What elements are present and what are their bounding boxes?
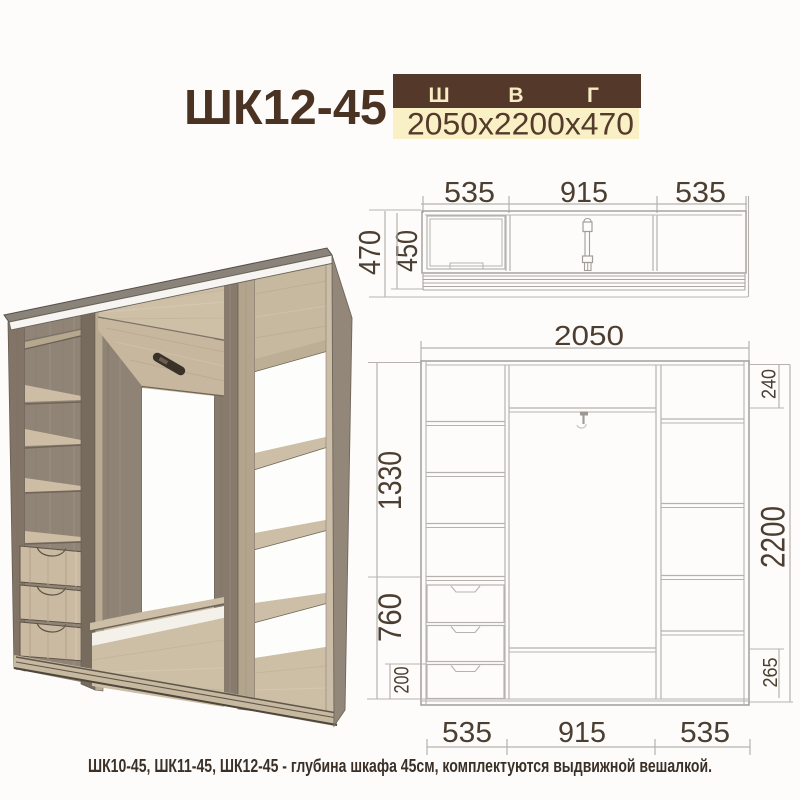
svg-text:2050: 2050 [554, 320, 624, 351]
svg-text:Г: Г [587, 84, 599, 107]
svg-text:470: 470 [352, 230, 387, 275]
svg-text:535: 535 [442, 717, 492, 749]
svg-text:ШК10-45, ШК11-45, ШК12-45 - гл: ШК10-45, ШК11-45, ШК12-45 - глубина шкаф… [88, 756, 712, 776]
svg-text:ШК12-45: ШК12-45 [184, 81, 387, 135]
svg-text:В: В [508, 84, 523, 107]
svg-text:760: 760 [372, 593, 408, 642]
svg-text:200: 200 [390, 666, 414, 693]
svg-text:450: 450 [389, 230, 424, 272]
svg-text:2050х2200х470: 2050х2200х470 [407, 106, 634, 142]
svg-text:2200: 2200 [755, 506, 793, 568]
svg-text:Ш: Ш [428, 84, 449, 107]
svg-text:915: 915 [558, 717, 606, 749]
svg-text:535: 535 [680, 717, 730, 749]
svg-text:240: 240 [759, 369, 781, 399]
